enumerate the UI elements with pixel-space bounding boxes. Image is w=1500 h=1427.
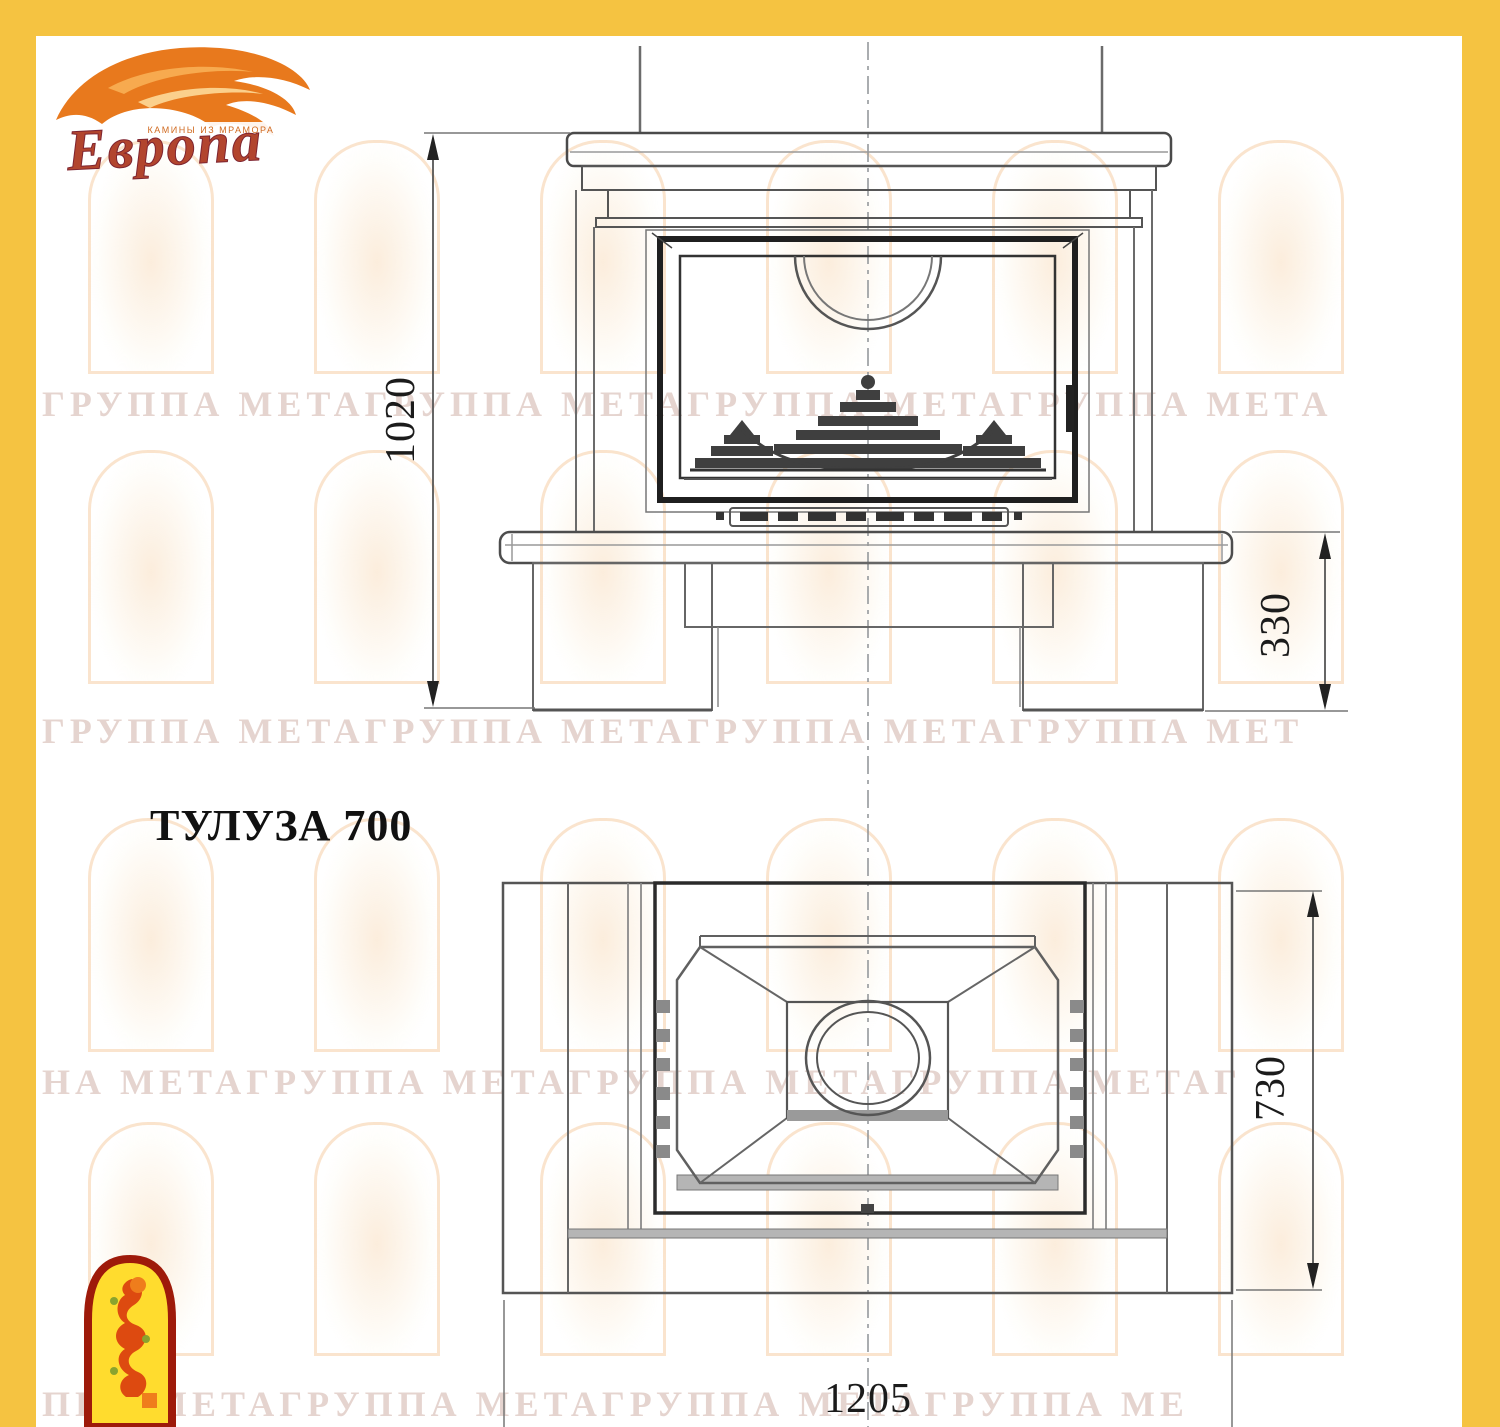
brand-name: Европа <box>64 108 264 183</box>
brand-logo: КАМИНЫ ИЗ МРАМОРА Европа <box>38 28 318 193</box>
dancer-emblem-icon <box>80 1245 180 1427</box>
plan-insert-housing <box>655 883 1085 1213</box>
door-handle <box>1066 385 1074 432</box>
hood-lip <box>596 218 1142 227</box>
dim-label-hearth-height: 330 <box>1253 592 1299 658</box>
dim-label-plan-depth: 730 <box>1248 1055 1294 1121</box>
hood-band <box>608 190 1130 218</box>
plan-side-ticks <box>656 1000 1084 1158</box>
hearth-slab <box>500 532 1232 563</box>
fireplace-drawing: 1020 330 <box>0 0 1500 1427</box>
corner-emblem <box>80 1245 180 1427</box>
frame-notch <box>1441 36 1462 55</box>
frame-right-bar <box>1462 30 1500 1427</box>
dimension-plan-depth: 730 <box>1236 891 1322 1290</box>
plan-hearth-edge <box>568 1229 1167 1238</box>
flame-logo-icon: КАМИНЫ ИЗ МРАМОРА Европа <box>38 28 318 188</box>
model-title: ТУЛУЗА 700 <box>150 800 412 851</box>
dimension-hearth-height: 330 <box>1205 532 1348 711</box>
mantel-shelf <box>567 133 1171 166</box>
base-center-box <box>685 563 1053 627</box>
base-leg <box>1023 563 1203 710</box>
dim-label-front-height: 1020 <box>378 376 424 464</box>
vent-slots <box>716 512 1022 521</box>
dimension-front-height: 1020 <box>378 133 570 708</box>
mantel-moulding <box>582 166 1156 190</box>
frame-left-bar <box>0 0 36 1427</box>
dimension-plan-width: 1205 <box>504 1300 1232 1427</box>
drawing-sheet: ГРУППА МЕТАГРУППА МЕТАГРУППА МЕТАГРУППА … <box>0 0 1500 1427</box>
front-view-drawing <box>500 46 1232 710</box>
base-pedestal-lines <box>718 627 1020 707</box>
dim-label-plan-width: 1205 <box>824 1376 912 1422</box>
